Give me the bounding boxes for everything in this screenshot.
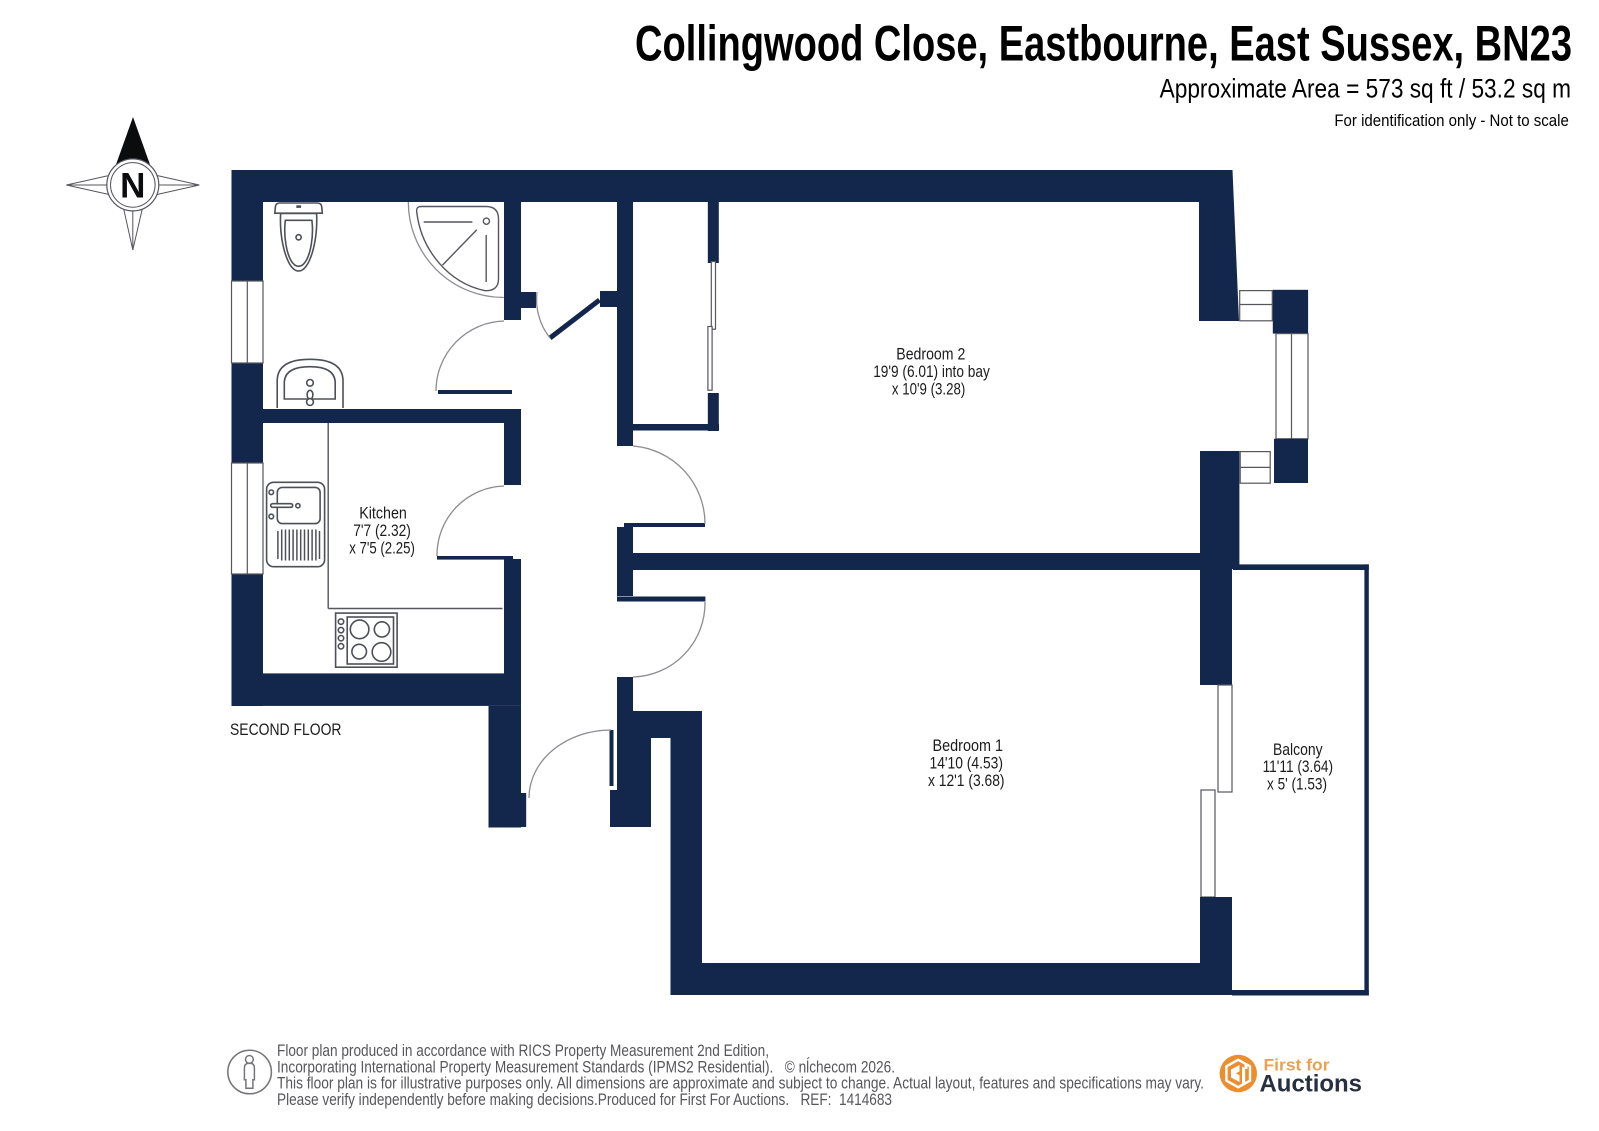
svg-text:Floor plan produced in accorda: Floor plan produced in accordance with R… bbox=[277, 1042, 769, 1060]
svg-text:11'11 (3.64): 11'11 (3.64) bbox=[1263, 757, 1334, 776]
svg-text:19'9 (6.01) into bay: 19'9 (6.01) into bay bbox=[873, 362, 990, 381]
svg-text:For identification only - Not: For identification only - Not to scale bbox=[1334, 111, 1568, 130]
svg-text:Kitchen: Kitchen bbox=[359, 504, 407, 523]
svg-text:Auctions: Auctions bbox=[1260, 1071, 1363, 1098]
svg-text:SECOND FLOOR: SECOND FLOOR bbox=[230, 720, 342, 739]
svg-text:This floor plan is for illustr: This floor plan is for illustrative purp… bbox=[277, 1074, 1204, 1092]
svg-text:Approximate Area = 573 sq ft /: Approximate Area = 573 sq ft / 53.2 sq m bbox=[1160, 74, 1571, 104]
svg-text:Please verify independently be: Please verify independently before makin… bbox=[277, 1091, 892, 1109]
svg-text:14'10 (4.53): 14'10 (4.53) bbox=[930, 754, 1004, 773]
svg-text:x 7'5 (2.25): x 7'5 (2.25) bbox=[349, 539, 415, 558]
svg-text:Bedroom 1: Bedroom 1 bbox=[933, 736, 1004, 755]
svg-text:x 12'1 (3.68): x 12'1 (3.68) bbox=[928, 771, 1005, 790]
svg-text:x 10'9 (3.28): x 10'9 (3.28) bbox=[892, 379, 965, 398]
svg-text:7'7 (2.32): 7'7 (2.32) bbox=[353, 521, 411, 540]
svg-text:N: N bbox=[120, 167, 145, 206]
svg-text:x 5' (1.53): x 5' (1.53) bbox=[1267, 774, 1327, 793]
svg-text:Collingwood Close, Eastbourne,: Collingwood Close, Eastbourne, East Suss… bbox=[635, 16, 1572, 72]
svg-text:Bedroom 2: Bedroom 2 bbox=[896, 345, 965, 364]
